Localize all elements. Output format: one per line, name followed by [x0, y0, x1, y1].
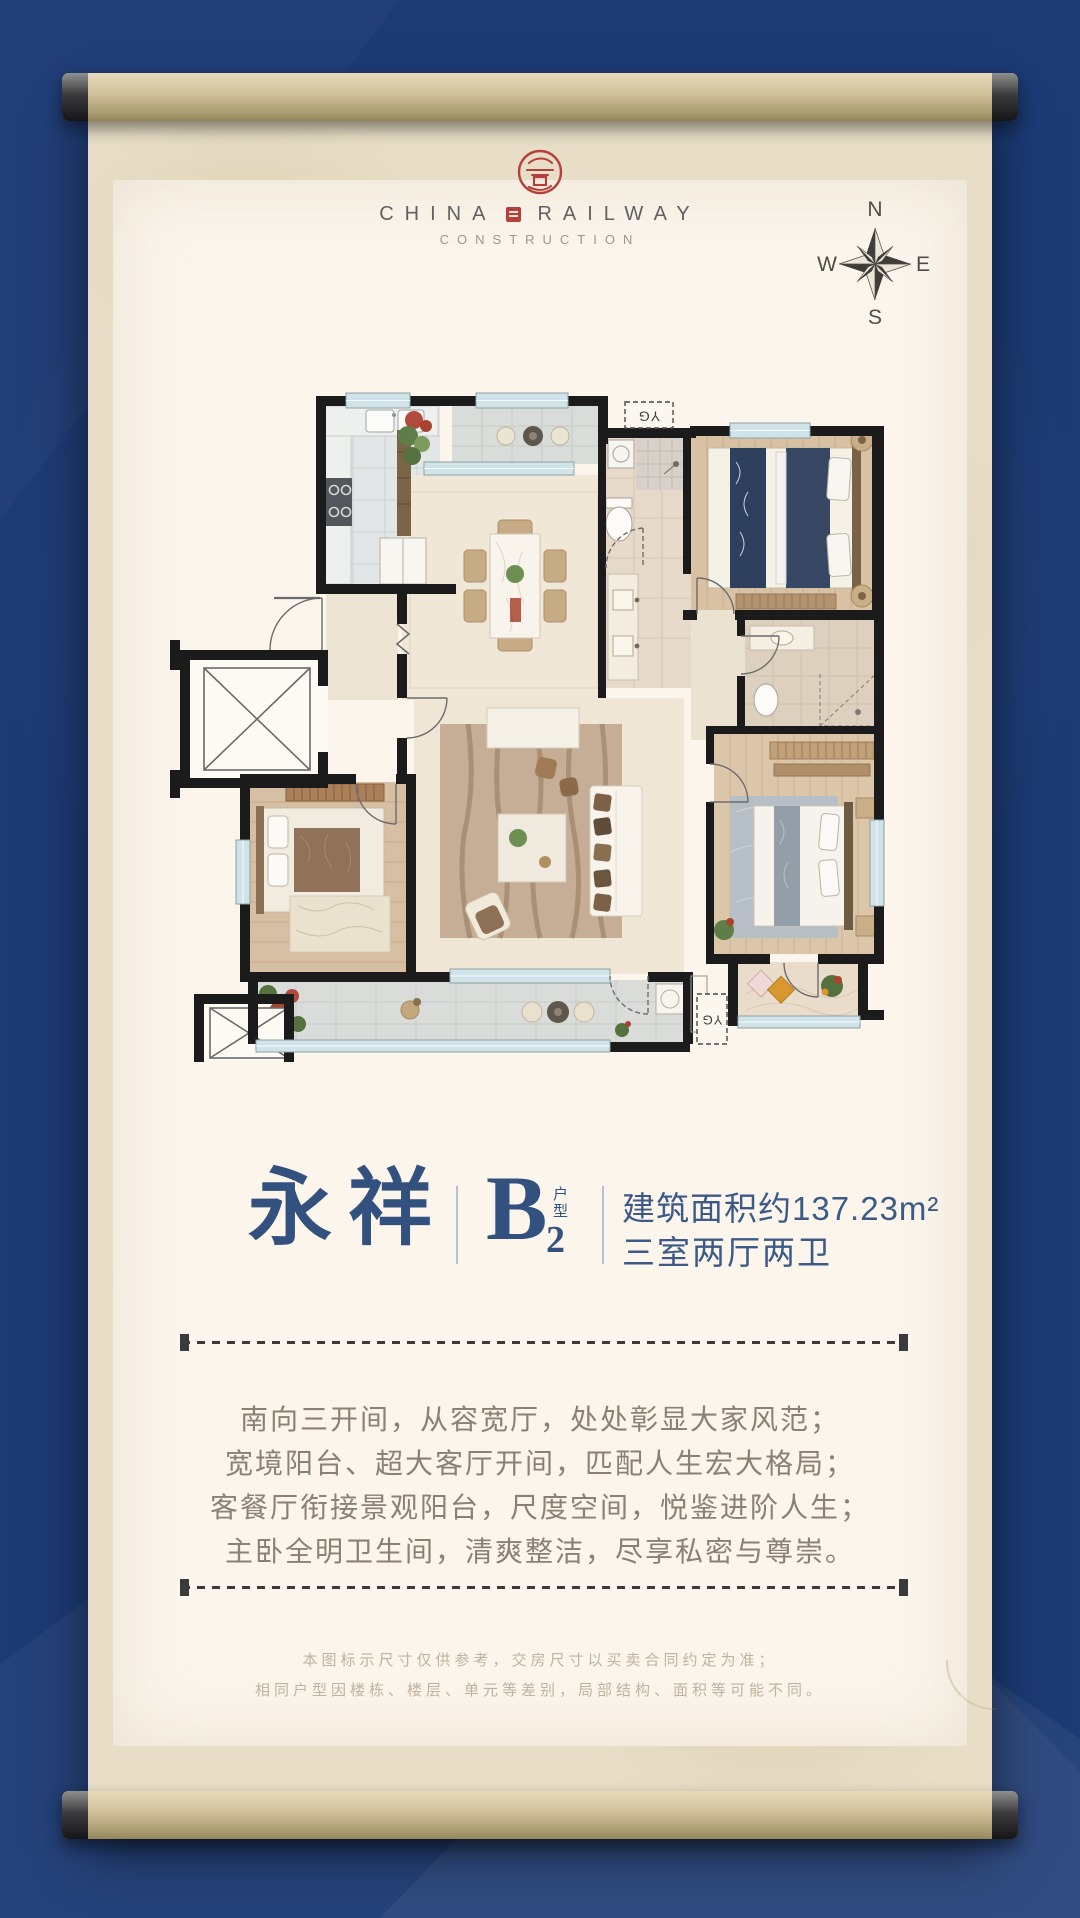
compass-icon: N S W E: [813, 192, 937, 328]
disclaimer-line: 相同户型因楼栋、楼层、单元等差别，局部结构、面积等可能不同。: [113, 1676, 967, 1706]
rooms-text: 三室两厅两卫: [622, 1226, 832, 1274]
floor-plan: YG YG: [170, 382, 890, 1062]
scroll-roller-bottom: [62, 1791, 1018, 1839]
unit-letter: B: [486, 1162, 547, 1254]
marketing-line: 客餐厅衔接景观阳台，尺度空间，悦鉴进阶人生；: [113, 1486, 967, 1530]
roller-cap-icon: [992, 73, 1018, 121]
plan-name: 永祥: [248, 1168, 448, 1252]
scroll-roller-top: [62, 73, 1018, 121]
compass-star: [839, 228, 911, 300]
roller-cap-icon: [62, 73, 88, 121]
marketing-line: 主卧全明卫生间，清爽整洁，尽享私密与尊崇。: [113, 1530, 967, 1574]
marketing-line: 宽境阳台、超大客厅开间，匹配人生宏大格局；: [113, 1442, 967, 1486]
title-divider: [602, 1186, 604, 1264]
marketing-line: 南向三开间，从容宽厅，处处彰显大家风范；: [113, 1398, 967, 1442]
compass-w: W: [817, 253, 837, 276]
compass-s: S: [868, 306, 882, 328]
brand-china: CHINA: [379, 203, 496, 226]
roller-cap-icon: [992, 1791, 1018, 1839]
compass-e: E: [916, 253, 930, 276]
unit-number: 2: [546, 1218, 565, 1262]
brand-railway: RAILWAY: [537, 203, 700, 226]
flue-label-top: YG: [638, 408, 660, 424]
disclaimer-line: 本图标示尺寸仅供参考，交房尺寸以买卖合同约定为准；: [113, 1646, 967, 1676]
disclaimer: 本图标示尺寸仅供参考，交房尺寸以买卖合同约定为准； 相同户型因楼栋、楼层、单元等…: [113, 1646, 967, 1706]
area-text: 建筑面积约137.23m²: [622, 1182, 939, 1230]
unit-tag: 户型: [549, 1186, 570, 1220]
dashed-divider-top: [182, 1341, 906, 1344]
dashed-divider-bottom: [182, 1586, 906, 1589]
compass-n: N: [867, 198, 882, 221]
red-seal-icon: [514, 146, 566, 198]
title-divider: [456, 1186, 458, 1264]
marketing-copy: 南向三开间，从容宽厅，处处彰显大家风范； 宽境阳台、超大客厅开间，匹配人生宏大格…: [113, 1398, 967, 1574]
brand-square-icon: [506, 207, 521, 222]
roller-cap-icon: [62, 1791, 88, 1839]
flue-label-bottom: YG: [702, 1013, 723, 1028]
